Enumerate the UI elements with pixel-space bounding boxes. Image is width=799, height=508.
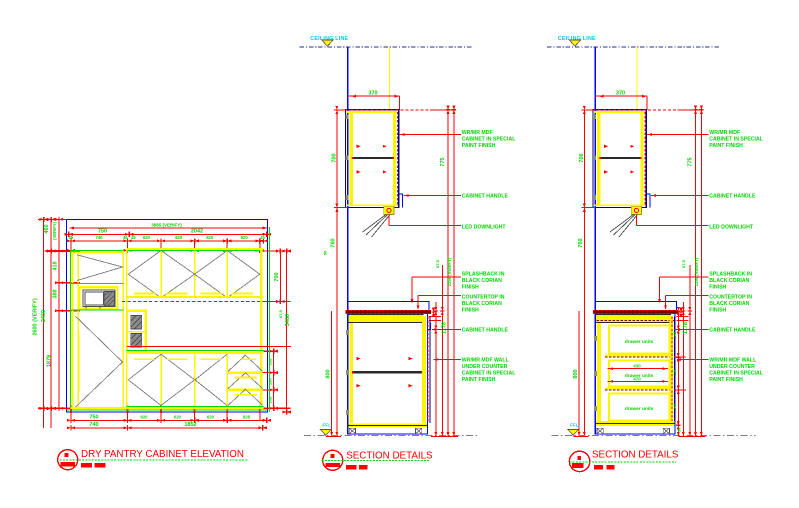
svg-text:drawer units: drawer units [625, 339, 654, 345]
svg-text:620: 620 [206, 235, 214, 240]
svg-text:COUNTERTOP IN: COUNTERTOP IN [709, 294, 752, 300]
svg-text:2042: 2042 [191, 229, 203, 235]
svg-text:388: 388 [52, 289, 58, 298]
svg-text:460: 460 [44, 224, 50, 233]
svg-text:45: 45 [123, 235, 128, 240]
svg-text:SECTION DETAILS: SECTION DETAILS [592, 450, 679, 461]
svg-text:WR/MR MDF WALL: WR/MR MDF WALL [709, 357, 757, 363]
svg-text:470: 470 [633, 376, 641, 381]
svg-text:WR/MR MDF WALL: WR/MR MDF WALL [462, 357, 510, 363]
svg-text:PAINT FINISH: PAINT FINISH [462, 377, 496, 383]
svg-text:FFL.: FFL. [323, 422, 333, 427]
svg-text:248: 248 [672, 403, 677, 410]
svg-text:UNDER COUNTER: UNDER COUNTER [462, 364, 508, 370]
svg-text:50: 50 [323, 250, 328, 255]
svg-text:CABINET IN SPECIAL: CABINET IN SPECIAL [462, 137, 516, 143]
svg-text:BLACK CORIAN: BLACK CORIAN [709, 301, 749, 307]
svg-text:620: 620 [241, 235, 249, 240]
svg-text:CABINET IN SPECIAL: CABINET IN SPECIAL [709, 137, 763, 143]
svg-text:FINISH: FINISH [462, 308, 479, 314]
svg-text:700: 700 [331, 153, 337, 162]
svg-text:SPLASHBACK IN: SPLASHBACK IN [709, 271, 752, 277]
svg-text:3885 (VERIFY): 3885 (VERIFY) [151, 223, 182, 228]
svg-text:1879: 1879 [46, 355, 52, 367]
svg-text:LED DOWNLIGHT: LED DOWNLIGHT [709, 224, 754, 230]
svg-text:620: 620 [143, 235, 151, 240]
svg-text:1178: 1178 [441, 322, 447, 334]
svg-text:FINISH: FINISH [709, 308, 726, 314]
svg-text:620: 620 [174, 415, 182, 420]
svg-text:PAINT FINISH: PAINT FINISH [462, 143, 496, 149]
svg-text:700: 700 [579, 153, 585, 162]
svg-text:800: 800 [573, 369, 579, 378]
svg-text:208: 208 [268, 358, 273, 365]
svg-text:FINISH: FINISH [462, 285, 479, 291]
svg-text:775: 775 [688, 157, 694, 166]
svg-text:BLACK CORIAN: BLACK CORIAN [462, 278, 502, 284]
svg-text:WR/MR MDF: WR/MR MDF [462, 130, 493, 136]
svg-text:418: 418 [52, 261, 58, 270]
svg-text:740: 740 [89, 422, 98, 428]
svg-text:(VERIFY): (VERIFY) [52, 221, 57, 240]
svg-text:drawer units: drawer units [625, 406, 654, 412]
svg-text:620: 620 [207, 415, 215, 420]
svg-text:2350 (VERIFY): 2350 (VERIFY) [694, 257, 699, 286]
svg-text:800: 800 [325, 369, 331, 378]
svg-text:SECTION DETAILS: SECTION DETAILS [346, 451, 433, 462]
svg-text:280: 280 [268, 377, 273, 384]
svg-text:45: 45 [131, 235, 136, 240]
svg-text:LED DOWNLIGHT: LED DOWNLIGHT [462, 224, 507, 230]
svg-text:1178: 1178 [683, 322, 689, 334]
svg-text:CABINET HANDLE: CABINET HANDLE [462, 328, 509, 334]
svg-text:750: 750 [89, 415, 98, 421]
svg-text:PAINT FINISH: PAINT FINISH [709, 143, 743, 149]
svg-text:2600 (VERIFY): 2600 (VERIFY) [32, 298, 38, 335]
svg-text:67.5: 67.5 [681, 259, 686, 268]
svg-text:620: 620 [141, 415, 149, 420]
svg-text:370: 370 [616, 91, 625, 97]
svg-text:67.5: 67.5 [278, 309, 283, 318]
svg-text:FINISH: FINISH [709, 285, 726, 291]
svg-text:UNDER COUNTER: UNDER COUNTER [709, 364, 755, 370]
svg-text:700: 700 [274, 272, 280, 281]
svg-text:828: 828 [243, 415, 251, 420]
svg-text:370: 370 [368, 91, 377, 97]
svg-text:775: 775 [440, 157, 446, 166]
svg-text:CABINET IN SPECIAL: CABINET IN SPECIAL [462, 371, 516, 377]
svg-text:760: 760 [331, 238, 337, 247]
svg-text:2350 (VERIFY): 2350 (VERIFY) [447, 257, 452, 286]
svg-text:750: 750 [98, 229, 107, 235]
svg-text:PAINT FINISH: PAINT FINISH [709, 377, 743, 383]
svg-text:67.5: 67.5 [435, 259, 440, 268]
svg-text:760: 760 [578, 238, 584, 247]
svg-text:45: 45 [68, 235, 73, 240]
svg-text:BLACK CORIAN: BLACK CORIAN [462, 301, 502, 307]
svg-text:2460: 2460 [41, 310, 47, 322]
svg-text:248: 248 [672, 331, 677, 338]
svg-text:WR/MR MDF: WR/MR MDF [709, 130, 740, 136]
svg-text:COUNTERTOP IN: COUNTERTOP IN [462, 294, 505, 300]
svg-text:CABINET HANDLE: CABINET HANDLE [709, 194, 756, 200]
svg-text:CABINET HANDLE: CABINET HANDLE [462, 194, 509, 200]
svg-text:1852: 1852 [184, 422, 196, 428]
svg-text:CABINET HANDLE: CABINET HANDLE [709, 328, 756, 334]
svg-text:430: 430 [633, 363, 641, 368]
svg-text:CABINET IN SPECIAL: CABINET IN SPECIAL [709, 371, 763, 377]
svg-text:740: 740 [96, 235, 104, 240]
svg-text:DRY PANTRY CABINET ELEVATION: DRY PANTRY CABINET ELEVATION [81, 449, 244, 460]
svg-text:50: 50 [677, 427, 682, 432]
svg-text:FFL.: FFL. [570, 422, 580, 427]
svg-text:SPLASHBACK IN: SPLASHBACK IN [462, 271, 505, 277]
svg-text:208: 208 [268, 396, 273, 403]
svg-text:3460: 3460 [285, 314, 291, 326]
svg-text:230: 230 [672, 368, 677, 375]
svg-text:45: 45 [260, 235, 265, 240]
svg-text:620: 620 [175, 235, 183, 240]
svg-text:BLACK CORIAN: BLACK CORIAN [709, 278, 749, 284]
